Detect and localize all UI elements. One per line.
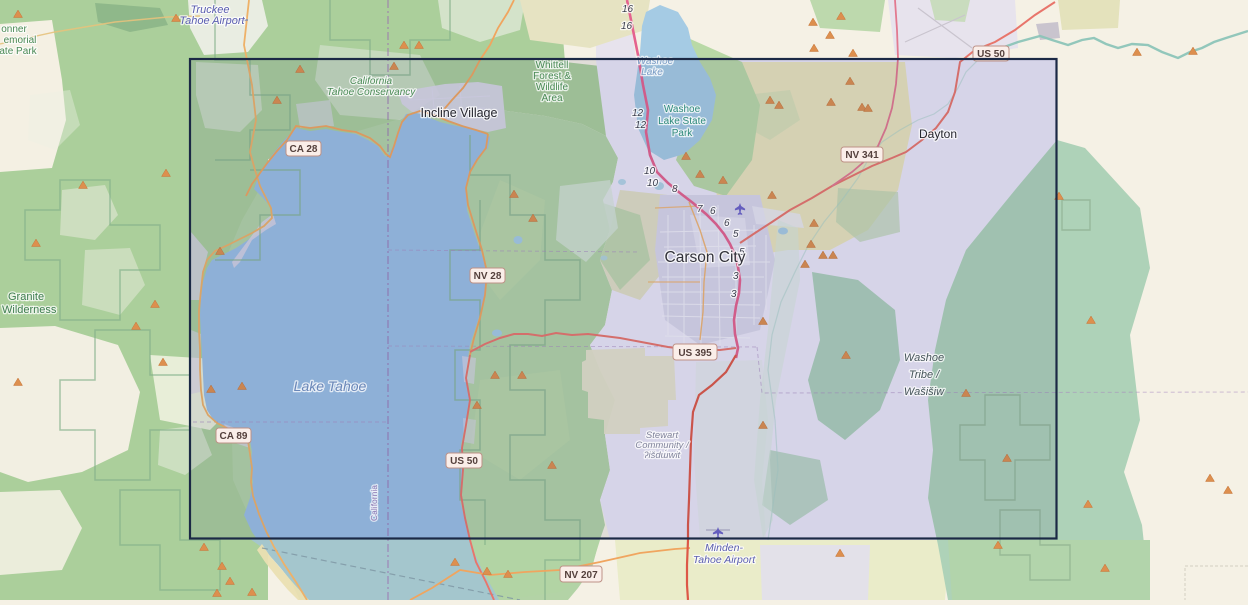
svg-text:12: 12 [632, 108, 644, 119]
svg-text:10: 10 [644, 166, 656, 177]
svg-text:7: 7 [697, 204, 703, 215]
svg-text:Incline Village: Incline Village [421, 106, 498, 120]
svg-text:5: 5 [733, 229, 739, 240]
svg-text:Tahoe Airport: Tahoe Airport [179, 15, 245, 27]
svg-text:California: California [369, 485, 379, 521]
svg-text:3: 3 [731, 289, 737, 300]
svg-text:US 50: US 50 [450, 456, 478, 467]
svg-text:10: 10 [647, 178, 659, 189]
svg-text:Whittell: Whittell [536, 60, 569, 71]
svg-text:8: 8 [672, 184, 678, 195]
svg-text:16: 16 [621, 21, 633, 32]
svg-text:NV 341: NV 341 [845, 150, 879, 161]
svg-text:Lake: Lake [641, 67, 663, 78]
svg-text:Lake State: Lake State [658, 116, 706, 127]
svg-text:Wašišiw: Wašišiw [904, 386, 945, 398]
svg-text:ate Park: ate Park [0, 46, 38, 57]
svg-text:Wilderness: Wilderness [2, 304, 57, 316]
svg-text:Tahoe Conservancy: Tahoe Conservancy [327, 87, 417, 98]
svg-text:Lake Tahoe: Lake Tahoe [294, 378, 367, 394]
svg-text:6: 6 [710, 206, 716, 217]
svg-text:NV 207: NV 207 [564, 570, 598, 581]
svg-text:CA 89: CA 89 [220, 431, 248, 442]
svg-text:Washoe: Washoe [637, 56, 674, 67]
svg-text:3: 3 [733, 271, 739, 282]
svg-text:emorial: emorial [4, 35, 37, 46]
svg-text:Washoe: Washoe [664, 104, 701, 115]
svg-text:Carson City: Carson City [665, 249, 746, 266]
svg-text:Park: Park [672, 128, 694, 139]
svg-text:Granite: Granite [8, 291, 44, 303]
svg-text:Minden-: Minden- [705, 542, 743, 554]
svg-text:ʔišdɯ́wit: ʔišdɯ́wit [644, 449, 681, 461]
svg-text:onner: onner [1, 24, 27, 35]
svg-text:US 395: US 395 [678, 348, 712, 359]
svg-text:Area: Area [541, 93, 563, 104]
svg-text:NV 28: NV 28 [474, 271, 502, 282]
svg-text:Forest &: Forest & [533, 71, 571, 82]
svg-text:Washoe: Washoe [904, 352, 944, 364]
svg-text:Wildlife: Wildlife [536, 82, 569, 93]
svg-text:CA 28: CA 28 [290, 144, 318, 155]
svg-text:12: 12 [635, 120, 647, 131]
svg-text:Tahoe Airport: Tahoe Airport [693, 554, 756, 566]
svg-text:6: 6 [724, 218, 730, 229]
svg-text:16: 16 [622, 4, 634, 15]
svg-text:Dayton: Dayton [919, 127, 957, 141]
svg-text:Tribe /: Tribe / [909, 369, 940, 381]
svg-text:California: California [350, 76, 393, 87]
